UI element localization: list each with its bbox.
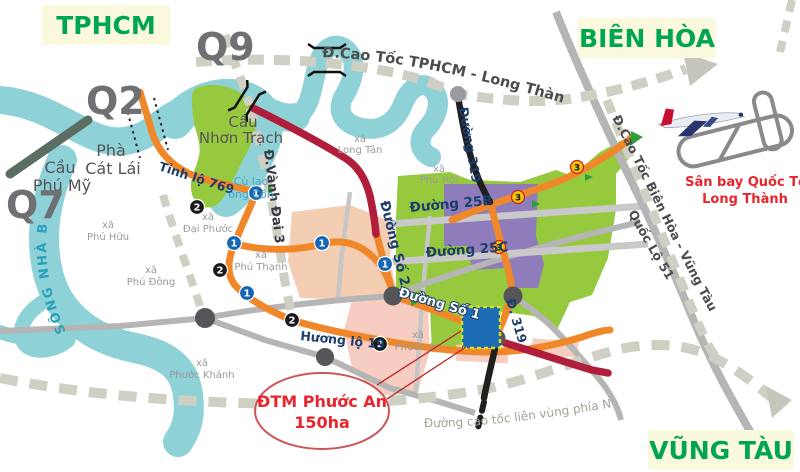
callout-line1: ĐTM Phước An — [257, 392, 387, 411]
label-pha-cat-lai-1: Phà — [96, 141, 126, 160]
region-bien-hoa: BIÊN HÒA — [579, 23, 716, 53]
label-duong-319: Đường 319 — [456, 106, 484, 184]
marker-blue-1: 1 — [240, 286, 255, 301]
label-cao-toc-bh-text: Đ.Cao Tốc Biên Hòa - Vũng Tàu — [609, 112, 720, 313]
marker-label: 1 — [231, 239, 238, 250]
commune-phuoc-an: Phước An — [395, 341, 442, 353]
interchange-dot-light — [450, 86, 466, 102]
commune-prefix: xã — [145, 265, 157, 276]
arrow-to-vung-tau — [766, 386, 792, 418]
commune-phu-huu: Phú Hữu — [87, 231, 129, 243]
marker-blue-1: 1 — [227, 236, 242, 251]
commune-prefix: xã — [102, 220, 114, 231]
marker-black-2: 2 — [213, 263, 228, 278]
callout-line2: 150ha — [294, 413, 350, 432]
marker-black-2: 2 — [285, 313, 300, 328]
label-cao-toc-bien-hoa-vung-tau: Đ.Cao Tốc Biên Hòa - Vũng Tàu — [609, 112, 720, 313]
runway-loop-2 — [752, 91, 783, 152]
marker-label: 1 — [319, 239, 326, 250]
map-canvas: 1 1 1 1 1 2 2 2 2 3 3 3 — [0, 0, 800, 472]
marker-yellow-3: 3 — [512, 191, 525, 204]
commune-prefix: xã — [202, 212, 214, 223]
marker-label: 2 — [194, 203, 201, 214]
marker-blue-1: 1 — [315, 236, 330, 251]
label-airport-1: Sân bay Quốc Tế — [685, 175, 800, 190]
airport-icon — [657, 91, 795, 170]
map-svg: 1 1 1 1 1 2 2 2 2 3 3 3 — [0, 0, 800, 472]
commune-prefix: xã — [255, 250, 267, 261]
commune-prefix: xã — [196, 358, 208, 369]
marker-label: 2 — [289, 316, 296, 327]
marker-label: 1 — [244, 289, 251, 300]
road-stub-top-right — [780, 0, 792, 52]
commune-long-tan: Long Tân — [338, 144, 383, 156]
label-cu-lao-2: ông Cồn — [228, 188, 274, 201]
label-pha-cat-lai-2: Cát Lái — [85, 159, 141, 178]
label-cau-nhon-trach-2: Nhơn Trạch — [199, 129, 283, 147]
commune-prefix: xã — [354, 134, 366, 145]
marker-yellow-3: 3 — [571, 161, 584, 174]
commune-phu-dong: Phú Đông — [127, 276, 175, 288]
label-cu-lao-1: Cù lao — [234, 175, 269, 188]
marker-label: 3 — [515, 194, 521, 204]
district-q9: Q9 — [196, 25, 255, 69]
commune-prefix: xã — [412, 330, 424, 341]
district-q2: Q2 — [86, 79, 145, 123]
callout-ellipse — [255, 373, 389, 449]
label-cau-phu-my-1: Cầu — [44, 158, 75, 177]
commune-prefix: xã — [433, 164, 445, 175]
region-vung-tau: VŨNG TÀU — [649, 435, 793, 465]
commune-dai-phuoc: Đại Phước — [183, 223, 233, 235]
region-tphcm: TPHCM — [56, 11, 156, 40]
district-q7: Q7 — [6, 183, 65, 227]
interchange-dot — [195, 308, 215, 328]
marker-label: 1 — [382, 260, 389, 271]
commune-phu-thanh: Phú Thạnh — [234, 261, 287, 273]
commune-phu-hoi: Phú Hội — [420, 174, 458, 186]
commune-phuoc-khanh: Phước Khánh — [169, 369, 234, 381]
interchange-dot — [316, 348, 334, 366]
marker-label: 3 — [574, 164, 580, 174]
marker-label: 2 — [217, 266, 224, 277]
label-airport-2: Long Thành — [702, 192, 788, 207]
runway-cross — [752, 91, 783, 152]
